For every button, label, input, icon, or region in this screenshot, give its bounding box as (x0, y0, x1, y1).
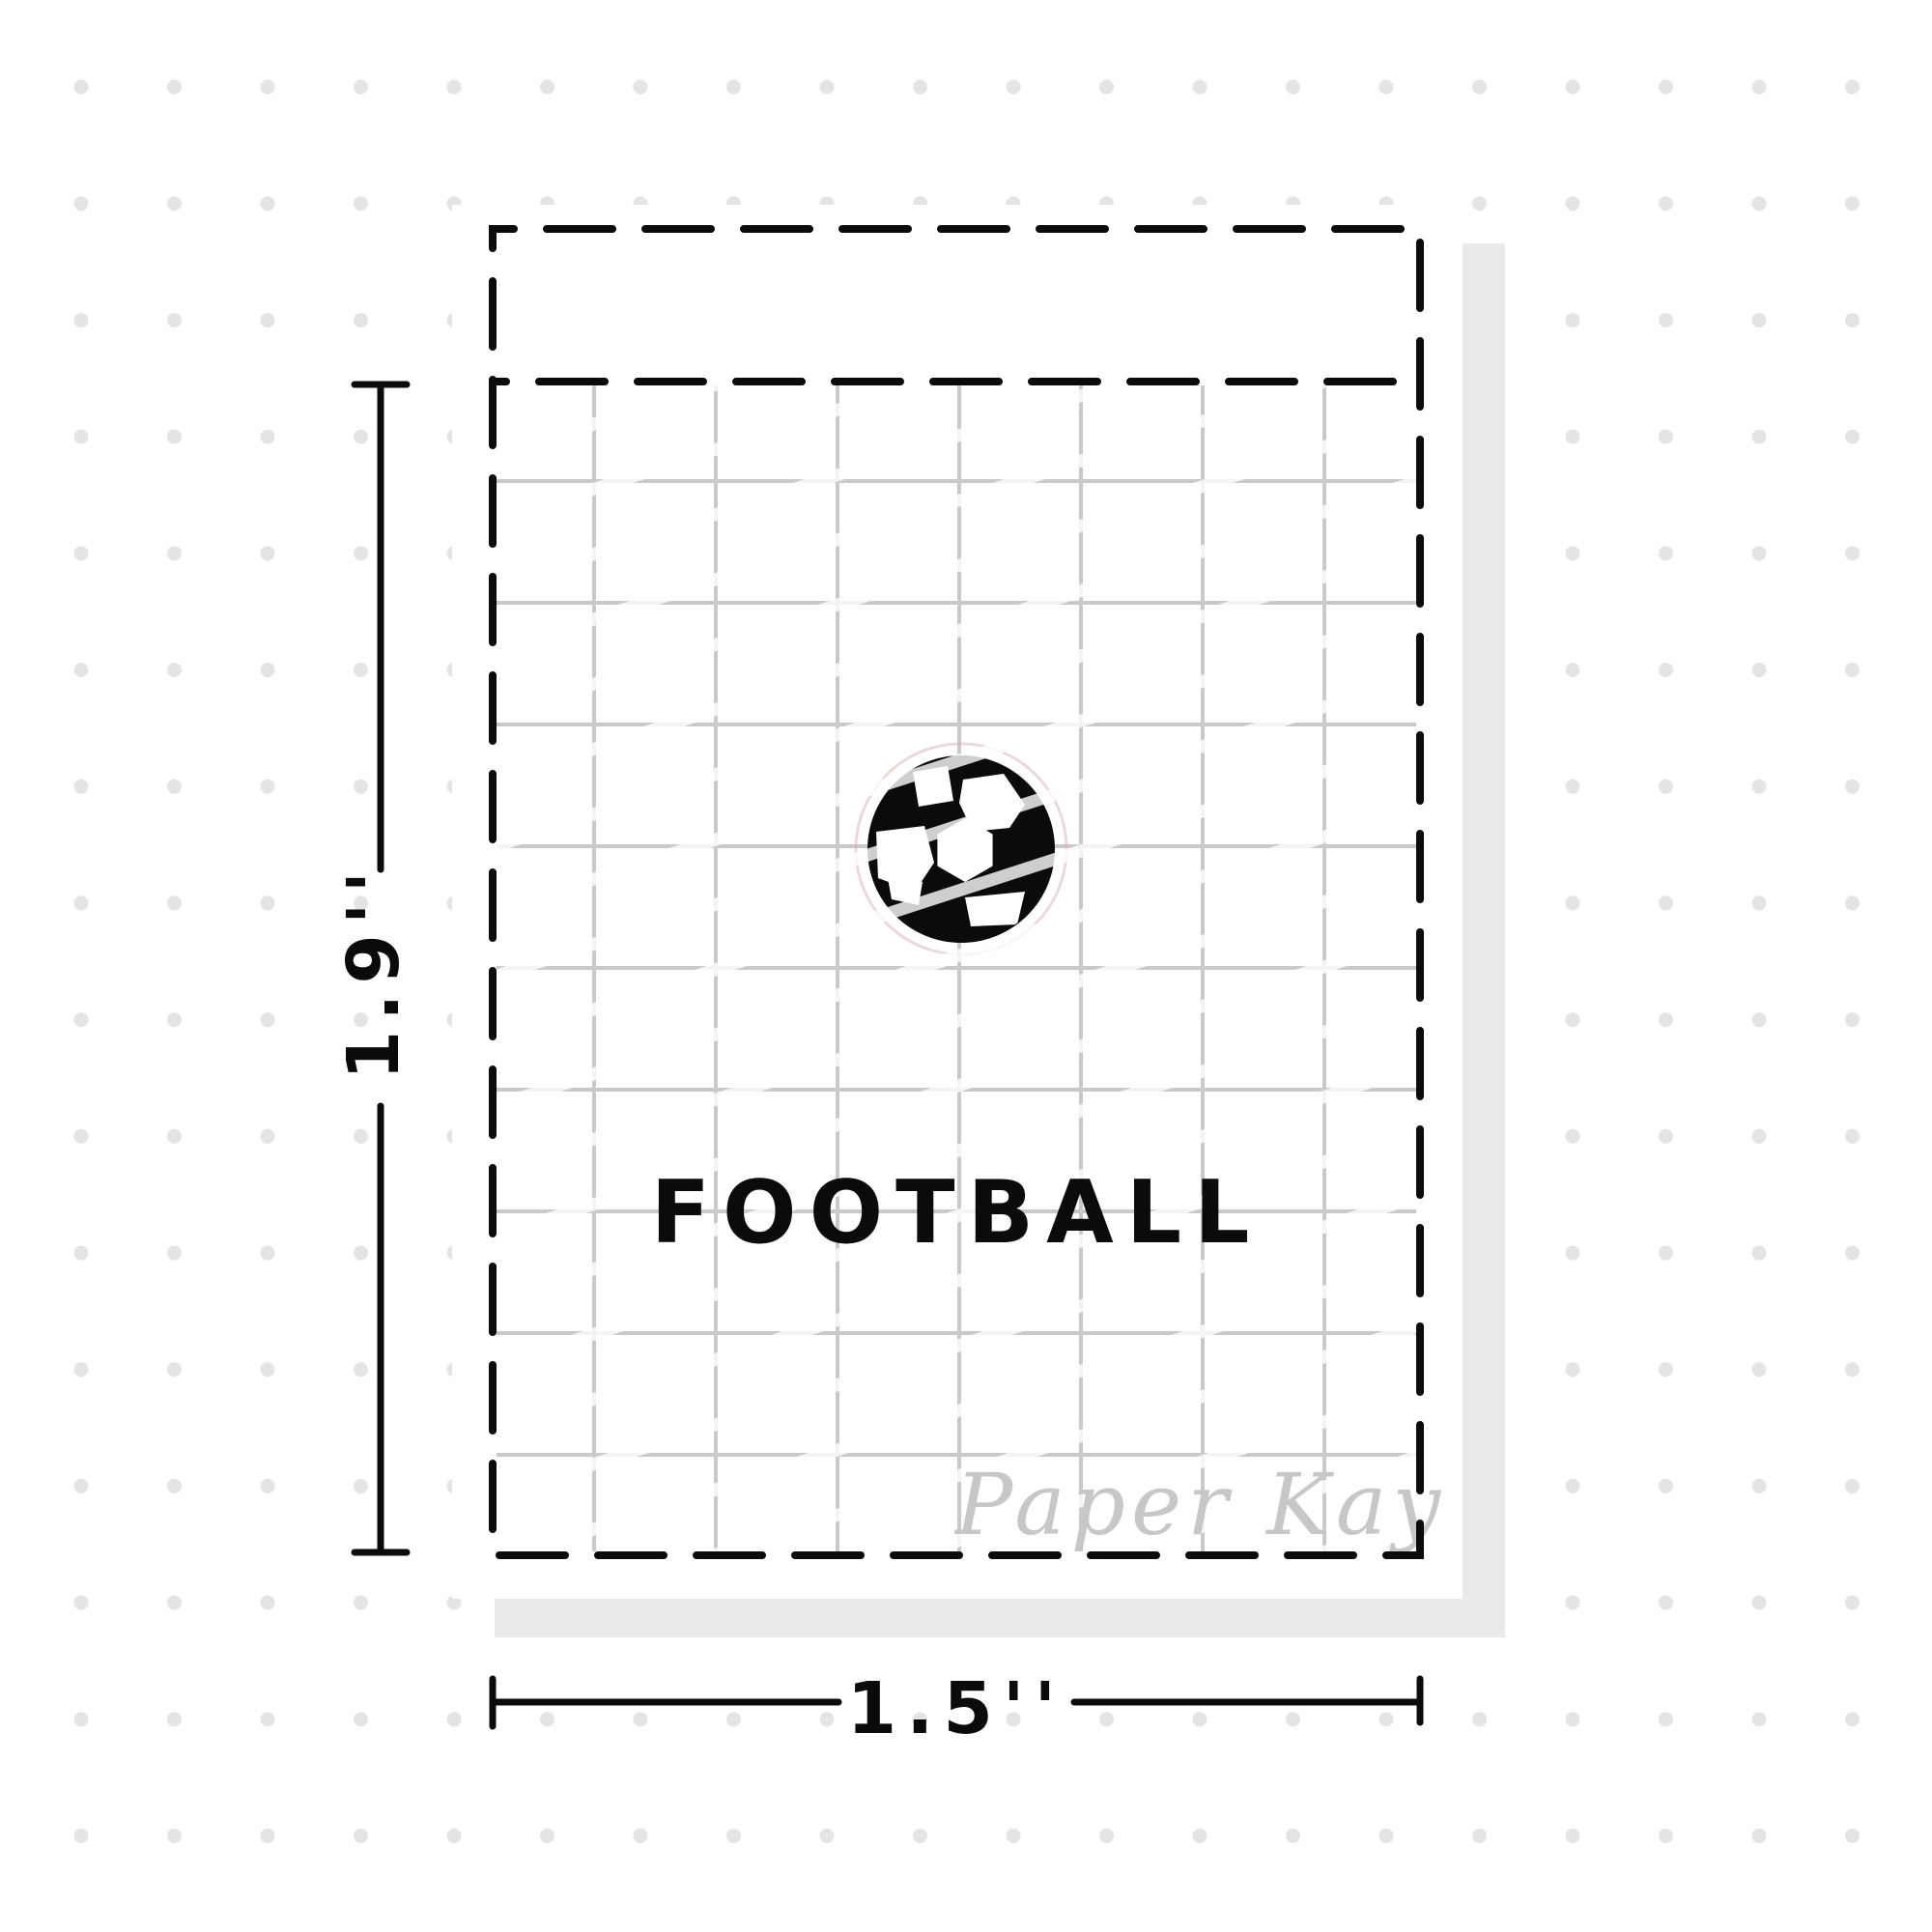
sheet-shadow-right (1463, 243, 1505, 1637)
stripes-overlay (452, 205, 1463, 1599)
sheet-shadow-bottom (495, 1599, 1505, 1637)
width-dimension-label: 1.5'' (847, 1667, 1065, 1750)
sticker-label: FOOTBALL (651, 1162, 1263, 1264)
sticker-size-guide: FOOTBALL Paper Kay 1.9'' 1.5'' (0, 0, 1932, 1932)
height-dimension-label: 1.9'' (332, 862, 415, 1080)
brand-watermark: Paper Kay (953, 1455, 1446, 1554)
